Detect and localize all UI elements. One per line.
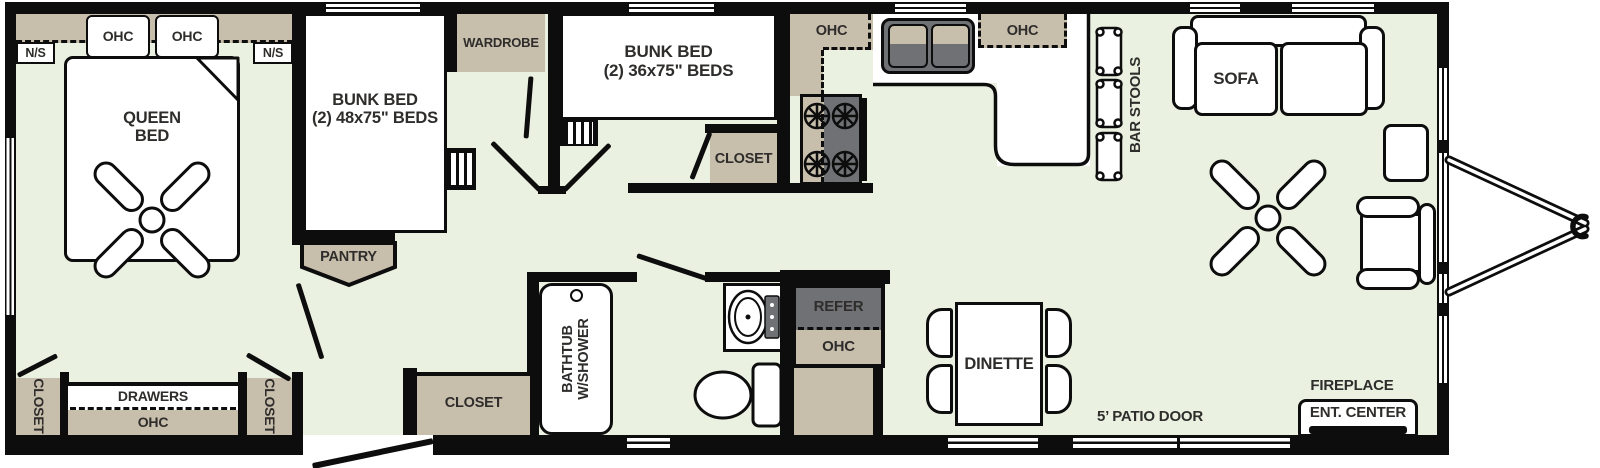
toilet-icon	[690, 358, 790, 433]
armchair-armrest	[1356, 196, 1420, 218]
dinette-chair-icon	[926, 364, 953, 414]
wall-segment	[527, 272, 637, 282]
bar-stool-icon	[1094, 24, 1130, 186]
bathtub-label: BATHTUB W/SHOWER	[556, 284, 596, 434]
armchair-seat	[1360, 213, 1422, 273]
ohc-label: OHC	[978, 14, 1067, 48]
kitchen-cabinet	[790, 50, 823, 96]
dinette-chair-icon	[1045, 364, 1072, 414]
dinette-label: DINETTE	[955, 302, 1043, 426]
ent-center-cabinet: ENT. CENTER	[1298, 399, 1418, 437]
ohc-dashed-line	[978, 14, 981, 45]
closet-label: CLOSET	[417, 374, 530, 433]
dinette-chair-icon	[926, 308, 953, 358]
ohc-dashed-line	[821, 50, 824, 96]
fireplace-label: FIREPLACE	[1290, 378, 1414, 395]
dinette-chair-icon	[1045, 308, 1072, 358]
hitch-icon	[1449, 138, 1600, 313]
ohc-label: OHC	[790, 16, 873, 46]
stove-burners-icon	[800, 94, 870, 189]
sofa-cushion	[1280, 42, 1368, 116]
wall-segment	[780, 270, 890, 284]
bathroom-sink-basin-icon	[723, 283, 785, 352]
refrigerator: REFER OHC	[792, 284, 885, 368]
ohc-label: OHC	[796, 330, 881, 364]
rv-floor-plan: N/S N/S OHC OHC QUEEN BED CLOSET CLOSET …	[0, 0, 1600, 468]
ohc-dashed-line	[978, 45, 1067, 48]
refer-label: REFER	[796, 288, 881, 326]
patio-door-label: 5’ PATIO DOOR	[1060, 409, 1240, 426]
end-table	[1383, 124, 1429, 182]
armchair-armrest	[1356, 268, 1420, 290]
bar-stools-label: BAR STOOLS	[1126, 25, 1146, 185]
wall-segment	[873, 368, 883, 435]
tv-icon	[1309, 426, 1407, 434]
sofa-label: SOFA	[1194, 42, 1278, 116]
ceiling-fan-icon	[1193, 143, 1343, 293]
wall-segment	[403, 368, 417, 435]
ohc-dashed-line	[823, 47, 871, 50]
kitchen-sink-icon	[881, 18, 975, 74]
armchair-back	[1418, 203, 1436, 285]
ohc-dashed-line	[1064, 14, 1067, 45]
galley-cabinet	[794, 368, 873, 435]
ohc-dashed-line	[868, 14, 871, 48]
wall-segment	[705, 272, 782, 282]
ent-center-label: ENT. CENTER	[1301, 403, 1415, 423]
